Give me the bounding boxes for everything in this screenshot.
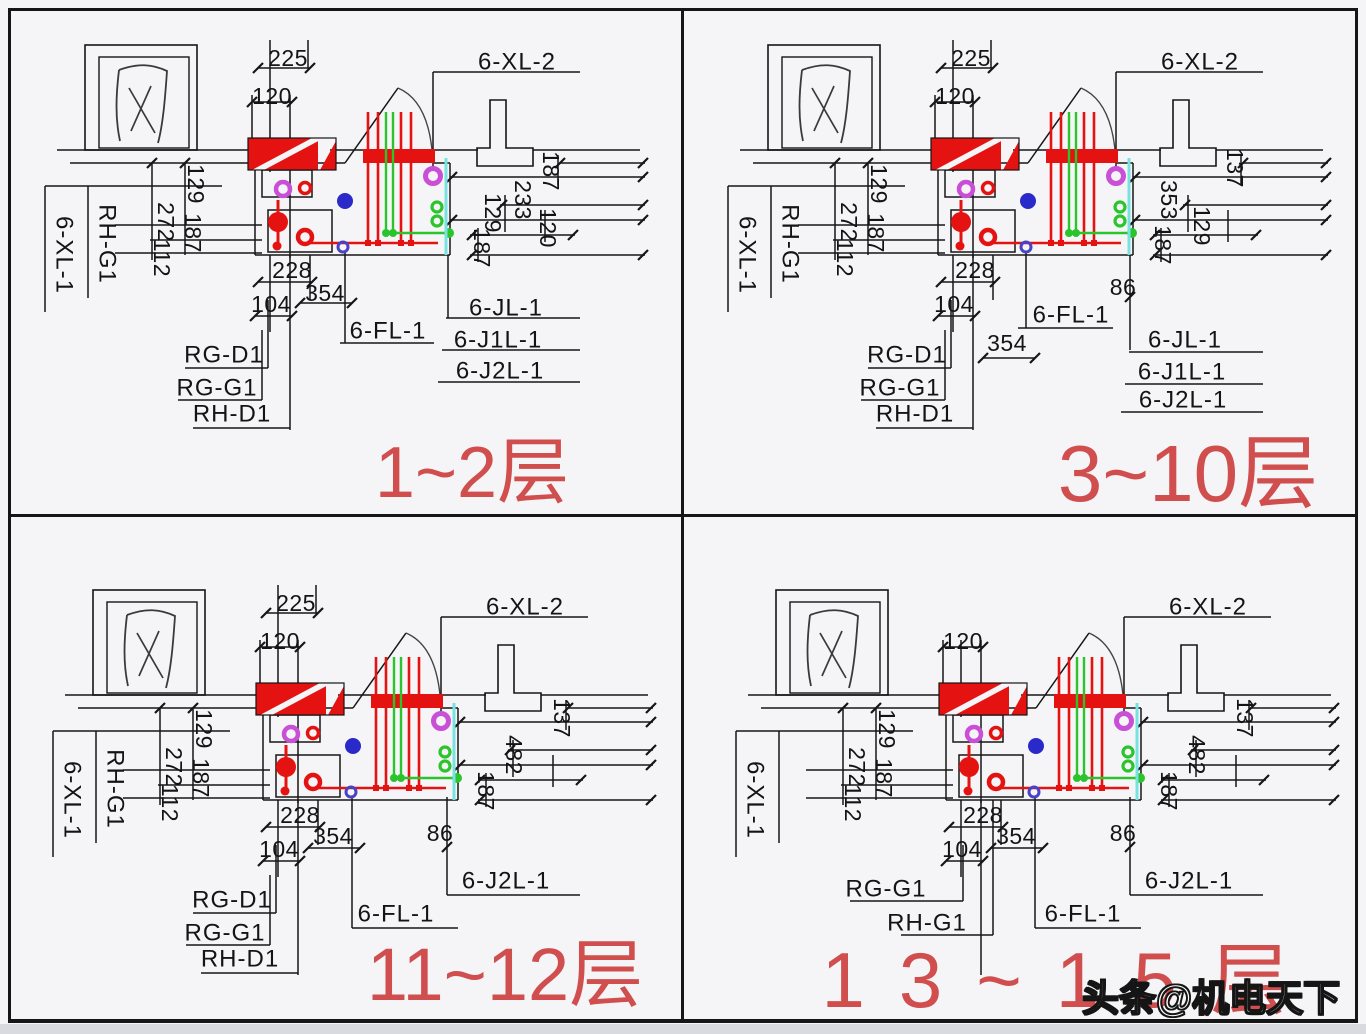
riser-detail-drawing: 2251201292721871121872331291201872283541… — [0, 0, 683, 517]
dim-left-2: 187 — [180, 213, 206, 253]
dim-top-1: 120 — [260, 628, 300, 654]
dim-left-2: 187 — [871, 758, 897, 798]
dim-left-2: 187 — [188, 758, 214, 798]
floor-label-1-2: 1~2层 — [375, 437, 569, 509]
floor-drain-label: 6-FL-1 — [350, 318, 427, 345]
riser-label-0: 6-JL-1 — [469, 295, 543, 322]
pipe-label-left-1: RH-G1 — [102, 749, 129, 829]
dim-right-1: 482 — [501, 735, 527, 775]
red-wall-hatch — [248, 138, 336, 170]
riser-label-0: 6-J2L-1 — [1145, 868, 1233, 895]
pipe-label-top: 6-XL-2 — [478, 49, 556, 76]
dim-left-1: 272 — [153, 202, 179, 242]
pipe-label-left-1: RH-G1 — [777, 204, 804, 284]
dim-left-3: 112 — [832, 239, 858, 277]
dim-top-1: 120 — [252, 83, 292, 109]
divider-horizontal — [8, 514, 1358, 517]
dim-bottom-2: 104 — [259, 836, 299, 862]
dim-bottom-1: 354 — [313, 823, 353, 849]
supply-label-2: RH-D1 — [193, 401, 271, 428]
dim-branch: 86 — [1110, 820, 1137, 846]
pipe-label-left-0: 6-XL-1 — [59, 761, 86, 839]
wind-character — [125, 610, 176, 688]
dim-branch: 86 — [427, 820, 454, 846]
dim-top-0: 120 — [943, 628, 983, 654]
supply-label-2: RH-D1 — [201, 946, 279, 973]
dim-right-1: 482 — [1184, 735, 1210, 775]
dim-left-3: 112 — [840, 784, 866, 822]
supply-label-1: RG-G1 — [176, 375, 257, 402]
dim-bottom-1: 354 — [305, 280, 345, 306]
dim-left-0: 129 — [191, 709, 217, 749]
dim-right-2: 129 — [480, 193, 506, 233]
riser-label-1: 6-J1L-1 — [1138, 359, 1226, 386]
dim-left-3: 112 — [149, 239, 175, 277]
dim-left-3: 112 — [157, 784, 183, 822]
pipe-label-left-0: 6-XL-1 — [734, 216, 761, 294]
dim-right-0: 137 — [1232, 698, 1258, 738]
dim-bottom-2: 104 — [942, 836, 982, 862]
riser-label-0: 6-JL-1 — [1148, 327, 1222, 354]
dim-left-1: 272 — [836, 202, 862, 242]
floor-drain-label: 6-FL-1 — [1033, 302, 1110, 329]
floor-drain-label: 6-FL-1 — [358, 901, 435, 928]
dim-left-0: 129 — [866, 164, 892, 204]
dim-right-4: 187 — [469, 228, 495, 268]
dim-bottom-2: 104 — [251, 291, 291, 317]
dim-branch: 86 — [1110, 274, 1137, 300]
supply-label-1: RG-G1 — [859, 375, 940, 402]
dim-right-2: 129 — [1189, 206, 1215, 246]
pipe-label-top: 6-XL-2 — [1161, 49, 1239, 76]
pipe-label-left-0: 6-XL-1 — [51, 216, 78, 294]
dim-left-1: 272 — [161, 747, 187, 787]
supply-label-1: RG-G1 — [184, 920, 265, 947]
riser-label-2: 6-J2L-1 — [456, 358, 544, 385]
dim-left-2: 187 — [863, 213, 889, 253]
dim-top-0: 225 — [276, 590, 316, 616]
dim-bottom-1: 354 — [987, 330, 1027, 356]
riser-label-2: 6-J2L-1 — [1139, 387, 1227, 414]
dim-top-1: 120 — [935, 83, 975, 109]
dim-top-0: 225 — [951, 45, 991, 71]
red-wall-hatch — [931, 138, 1019, 170]
quadrant-floors-1-2: 2251201292721871121872331291201872283541… — [0, 0, 683, 517]
dim-right-2: 187 — [473, 771, 499, 811]
wind-character — [117, 65, 168, 143]
supply-label-0: RG-D1 — [192, 887, 272, 914]
supply-label-0: RG-G1 — [845, 876, 926, 903]
dim-right-0: 187 — [538, 151, 564, 191]
dim-right-1: 233 — [510, 180, 536, 220]
dim-top-0: 225 — [268, 45, 308, 71]
drawing-canvas: 2251201292721871121872331291201872283541… — [0, 0, 1366, 1034]
pipe-label-left-1: RH-G1 — [94, 204, 121, 284]
dim-right-0: 137 — [1222, 148, 1248, 188]
pipe-label-left-0: 6-XL-1 — [742, 761, 769, 839]
supply-label-2: RH-D1 — [876, 401, 954, 428]
red-wall-hatch — [256, 683, 344, 715]
dim-right-3: 120 — [535, 208, 561, 248]
red-wall-hatch — [939, 683, 1027, 715]
floor-drain-label: 6-FL-1 — [1045, 901, 1122, 928]
riser-label-0: 6-J2L-1 — [462, 868, 550, 895]
pipe-label-top: 6-XL-2 — [1169, 594, 1247, 621]
dim-right-3: 187 — [1150, 225, 1176, 265]
dim-right-0: 137 — [549, 698, 575, 738]
dim-right-2: 187 — [1156, 771, 1182, 811]
wind-character — [808, 610, 859, 688]
dim-bottom-1: 354 — [996, 823, 1036, 849]
dim-left-0: 129 — [183, 164, 209, 204]
dim-left-1: 272 — [844, 747, 870, 787]
floor-label-3-10: 3~10层 — [1058, 434, 1318, 514]
pipe-label-top: 6-XL-2 — [486, 594, 564, 621]
watermark: 头条@机电天下 — [1082, 968, 1340, 1022]
dim-right-1: 353 — [1156, 180, 1182, 220]
riser-label-1: 6-J1L-1 — [454, 327, 542, 354]
bottom-strip — [0, 1024, 1366, 1034]
supply-label-0: RG-D1 — [867, 342, 947, 369]
supply-label-1: RH-G1 — [887, 910, 967, 937]
floor-label-11-12: 11~12层 — [367, 938, 643, 1012]
supply-label-0: RG-D1 — [184, 342, 264, 369]
dim-bottom-0: 228 — [955, 257, 995, 283]
wind-character — [800, 65, 851, 143]
dim-bottom-2: 104 — [934, 291, 974, 317]
dim-left-0: 129 — [874, 709, 900, 749]
